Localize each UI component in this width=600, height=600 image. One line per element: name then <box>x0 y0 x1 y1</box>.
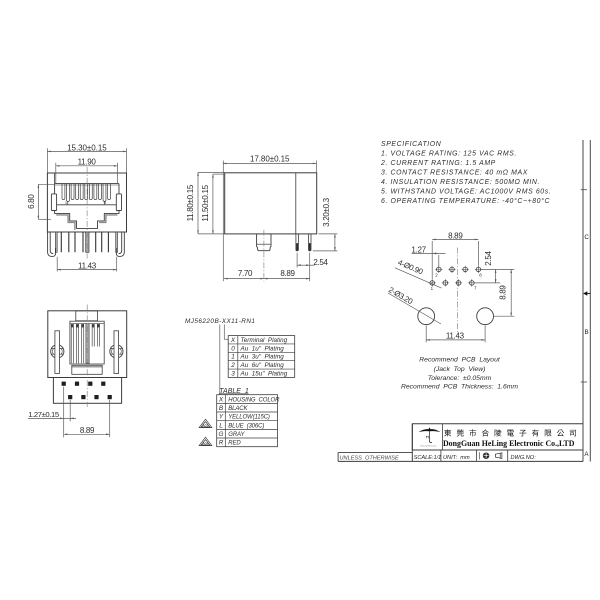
svg-text:Au 3u" Plating: Au 3u" Plating <box>240 354 285 361</box>
svg-text:2.54: 2.54 <box>484 250 493 265</box>
svg-text:BLACK: BLACK <box>228 406 248 412</box>
svg-text:(Jack Top View): (Jack Top View) <box>434 366 486 373</box>
svg-text:1. VOLTAGE RATING: 125 VAC RMS: 1. VOLTAGE RATING: 125 VAC RMS. <box>381 151 517 158</box>
svg-text:17.80±0.15: 17.80±0.15 <box>250 154 290 163</box>
svg-text:8.89: 8.89 <box>80 426 95 435</box>
svg-text:2. CURRENT RATING: 1.5 AMP: 2. CURRENT RATING: 1.5 AMP <box>380 160 496 167</box>
svg-text:7.70: 7.70 <box>238 269 253 278</box>
svg-text:Au 6u" Plating: Au 6u" Plating <box>240 362 285 369</box>
svg-text:DWG.NO:: DWG.NO: <box>511 455 537 461</box>
svg-text:1: 1 <box>231 354 235 361</box>
svg-text:6.80: 6.80 <box>27 194 36 209</box>
svg-text:1.27±0.15: 1.27±0.15 <box>28 410 59 419</box>
svg-text:HeLing Electronic: HeLing Electronic <box>420 444 436 447</box>
svg-text:1.27: 1.27 <box>411 246 426 255</box>
svg-text:8.89: 8.89 <box>448 232 463 241</box>
svg-text:SCALE:1/1: SCALE:1/1 <box>414 455 442 461</box>
svg-text:Recommend PCB Thickness: 1.: Recommend PCB Thickness: 1.6mm <box>401 384 518 391</box>
svg-text:A01: A01 <box>203 423 209 427</box>
svg-text:2: 2 <box>230 362 235 369</box>
svg-text:Y: Y <box>219 414 224 421</box>
svg-text:MJ56220B-XX11-RN1: MJ56220B-XX11-RN1 <box>185 318 255 325</box>
svg-text:Terminal Plating: Terminal Plating <box>241 337 288 344</box>
svg-text:YELLOW(115C): YELLOW(115C) <box>228 415 270 421</box>
svg-text:X: X <box>230 337 236 344</box>
svg-text:5. WITHSTAND VOLTAGE: AC1000V: 5. WITHSTAND VOLTAGE: AC1000V RMS 60s. <box>381 189 551 196</box>
svg-text:L: L <box>219 422 223 429</box>
svg-text:X: X <box>218 396 224 403</box>
svg-text:Recommend PCB Layout: Recommend PCB Layout <box>419 357 501 364</box>
svg-text:0: 0 <box>231 345 235 352</box>
svg-text:Tolerance: ±0.05mm: Tolerance: ±0.05mm <box>428 375 492 382</box>
svg-text:Au 15u" Plating: Au 15u" Plating <box>240 370 288 377</box>
svg-text:11.43: 11.43 <box>78 261 97 270</box>
svg-text:2.54: 2.54 <box>313 258 328 267</box>
svg-text:11.80±0.15: 11.80±0.15 <box>186 184 195 221</box>
svg-text:11.43: 11.43 <box>446 331 465 340</box>
svg-text:B: B <box>585 329 589 336</box>
svg-text:UNLESS OTHERWISE: UNLESS OTHERWISE <box>340 455 400 461</box>
svg-text:C: C <box>584 234 589 241</box>
svg-text:RED: RED <box>228 441 241 447</box>
svg-text:B: B <box>219 405 224 412</box>
svg-text:3.20±0.3: 3.20±0.3 <box>322 197 331 227</box>
svg-text:A04: A04 <box>203 441 209 445</box>
svg-text:8.89: 8.89 <box>499 285 508 300</box>
svg-text:11.50±0.15: 11.50±0.15 <box>201 184 210 221</box>
svg-text:HOUSING COLOR: HOUSING COLOR <box>228 397 280 403</box>
svg-text:15.30±0.15: 15.30±0.15 <box>67 143 107 152</box>
svg-text:8.89: 8.89 <box>280 269 295 278</box>
svg-text:3. CONTACT RESISTANCE: 40 mΩ M: 3. CONTACT RESISTANCE: 40 mΩ MAX <box>381 170 528 177</box>
svg-text:GRAY: GRAY <box>228 432 245 438</box>
svg-text:DongGuan HeLing Electronic Co.: DongGuan HeLing Electronic Co.,LTD <box>443 439 575 448</box>
svg-text:Au 1u" Plating: Au 1u" Plating <box>240 345 285 352</box>
svg-text:3: 3 <box>231 370 235 377</box>
svg-text:SPECIFICATION: SPECIFICATION <box>381 141 441 148</box>
svg-text:BLUE (306C): BLUE (306C) <box>228 423 264 429</box>
svg-text:6. OPERATING TEMPERATURE: -40°: 6. OPERATING TEMPERATURE: -40°C~+80°C <box>381 197 551 205</box>
svg-text:R: R <box>219 440 224 447</box>
svg-text:11.90: 11.90 <box>78 157 97 166</box>
svg-text:G: G <box>219 431 224 438</box>
svg-text:UNIT: mm: UNIT: mm <box>443 455 470 461</box>
svg-text:4. INSULATION RESISTANCE: 500M: 4. INSULATION RESISTANCE: 500MΩ MIN. <box>381 179 540 186</box>
